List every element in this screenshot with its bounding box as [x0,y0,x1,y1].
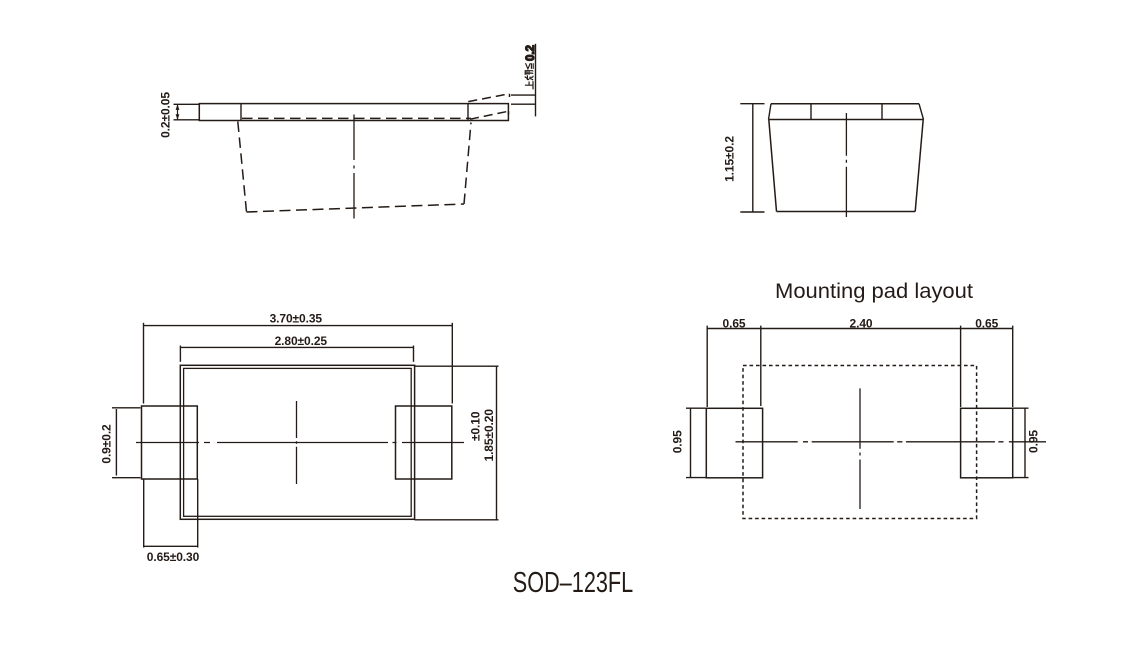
svg-text:SOD–123FL: SOD–123FL [513,567,633,599]
svg-text:0.95: 0.95 [1027,430,1041,453]
svg-text:0.65: 0.65 [723,316,746,330]
svg-text:Mounting pad layout: Mounting pad layout [775,279,973,303]
svg-text:0.65±0.30: 0.65±0.30 [147,550,200,564]
svg-text:0.2±0.05: 0.2±0.05 [159,92,173,138]
svg-text:±0.10: ±0.10 [469,411,483,441]
svg-text:0.65: 0.65 [975,316,998,330]
svg-text:0.95: 0.95 [671,430,685,453]
svg-text:0.2: 0.2 [525,45,537,61]
svg-text:0.9±0.2: 0.9±0.2 [99,424,113,464]
svg-text:1.85±0.20: 1.85±0.20 [482,409,496,462]
svg-text:3.70±0.35: 3.70±0.35 [270,312,323,326]
svg-text:1.15±0.2: 1.15±0.2 [723,136,737,182]
svg-text:2.40: 2.40 [850,316,873,330]
svg-text:2.80±0.25: 2.80±0.25 [275,334,328,348]
